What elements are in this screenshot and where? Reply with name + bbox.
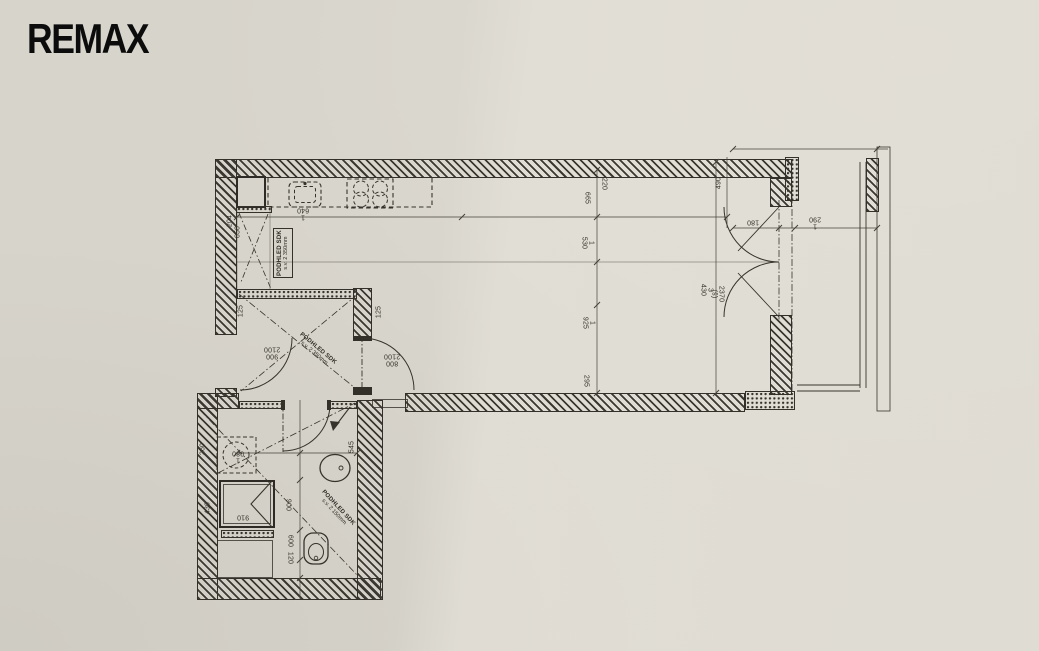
dimension-label: 1 530 — [580, 237, 595, 249]
stove — [347, 179, 393, 208]
dimension-label: 490 — [715, 177, 722, 189]
dimension-label: 900 2100 — [264, 345, 280, 360]
neighbor-balcony-edge — [877, 147, 890, 411]
ceiling-note-kitchen: PODHLED SDK s.v. 2 350mm — [273, 228, 293, 278]
dimension-label: 2370 (š) — [710, 286, 725, 302]
toilet-bowl — [309, 544, 324, 561]
doors — [240, 159, 792, 452]
railing-bottom — [797, 385, 860, 391]
shower-folding-door — [251, 481, 272, 527]
kitchen-counter — [268, 178, 432, 207]
dimension-label: 204 — [226, 215, 233, 227]
dimension-label: 220 — [600, 178, 607, 190]
dimension-label: 900 — [284, 499, 291, 511]
dimension-label: 600 — [286, 535, 293, 547]
dimension-label: 650 — [234, 226, 241, 238]
ceiling-diagonals — [200, 294, 360, 576]
washbasin — [320, 455, 350, 482]
sink — [289, 182, 321, 207]
dimension-label: 800 2100 — [384, 352, 400, 367]
entry-arrow-head — [330, 421, 340, 431]
stove-burner — [354, 181, 369, 196]
dimension-label: 545 — [348, 441, 355, 453]
balcony-railing — [797, 147, 890, 411]
bath-diagonal-1 — [200, 410, 358, 576]
ceiling-note-text: s.v. 2 350mm — [283, 230, 289, 276]
scanned-floor-plan-page: REMAX — [0, 0, 1039, 651]
washbasin-drain — [339, 466, 343, 470]
sink-basin — [295, 187, 316, 203]
plan-linework — [0, 0, 1039, 651]
bathroom-fixtures — [217, 407, 350, 564]
dimension-label: 120 — [286, 552, 293, 564]
dimension-label: 1 290 — [809, 215, 821, 230]
toilet-drain — [314, 556, 318, 560]
dimension-label: 295 — [582, 375, 589, 387]
dimension-label: 430 — [204, 502, 211, 514]
kitchen-ceiling-diagonals — [239, 213, 271, 289]
stove-burner — [373, 181, 388, 196]
balcony-door-axis — [779, 159, 792, 393]
dimension-lines — [234, 146, 888, 600]
dimension-label: 665 — [583, 192, 590, 204]
floor-plan: PODHLED SDK s.v. 2 350mm PODHLED SDK s.v… — [0, 0, 1039, 651]
dimension-label: 180 — [747, 218, 759, 225]
dimension-label: 125 — [375, 306, 382, 318]
dimension-label: 260 — [199, 443, 206, 455]
sink-faucet — [303, 182, 306, 185]
dimension-label: 1 640 — [297, 206, 309, 221]
railing-side — [860, 162, 866, 388]
dimension-label: 1 925 — [581, 317, 596, 329]
kitchen-fixtures — [237, 178, 432, 292]
dimension-label: 1 080 — [232, 449, 244, 464]
dimension-label: 125 — [237, 305, 244, 317]
toilet — [304, 533, 328, 564]
dimension-label: 910 — [237, 513, 249, 520]
